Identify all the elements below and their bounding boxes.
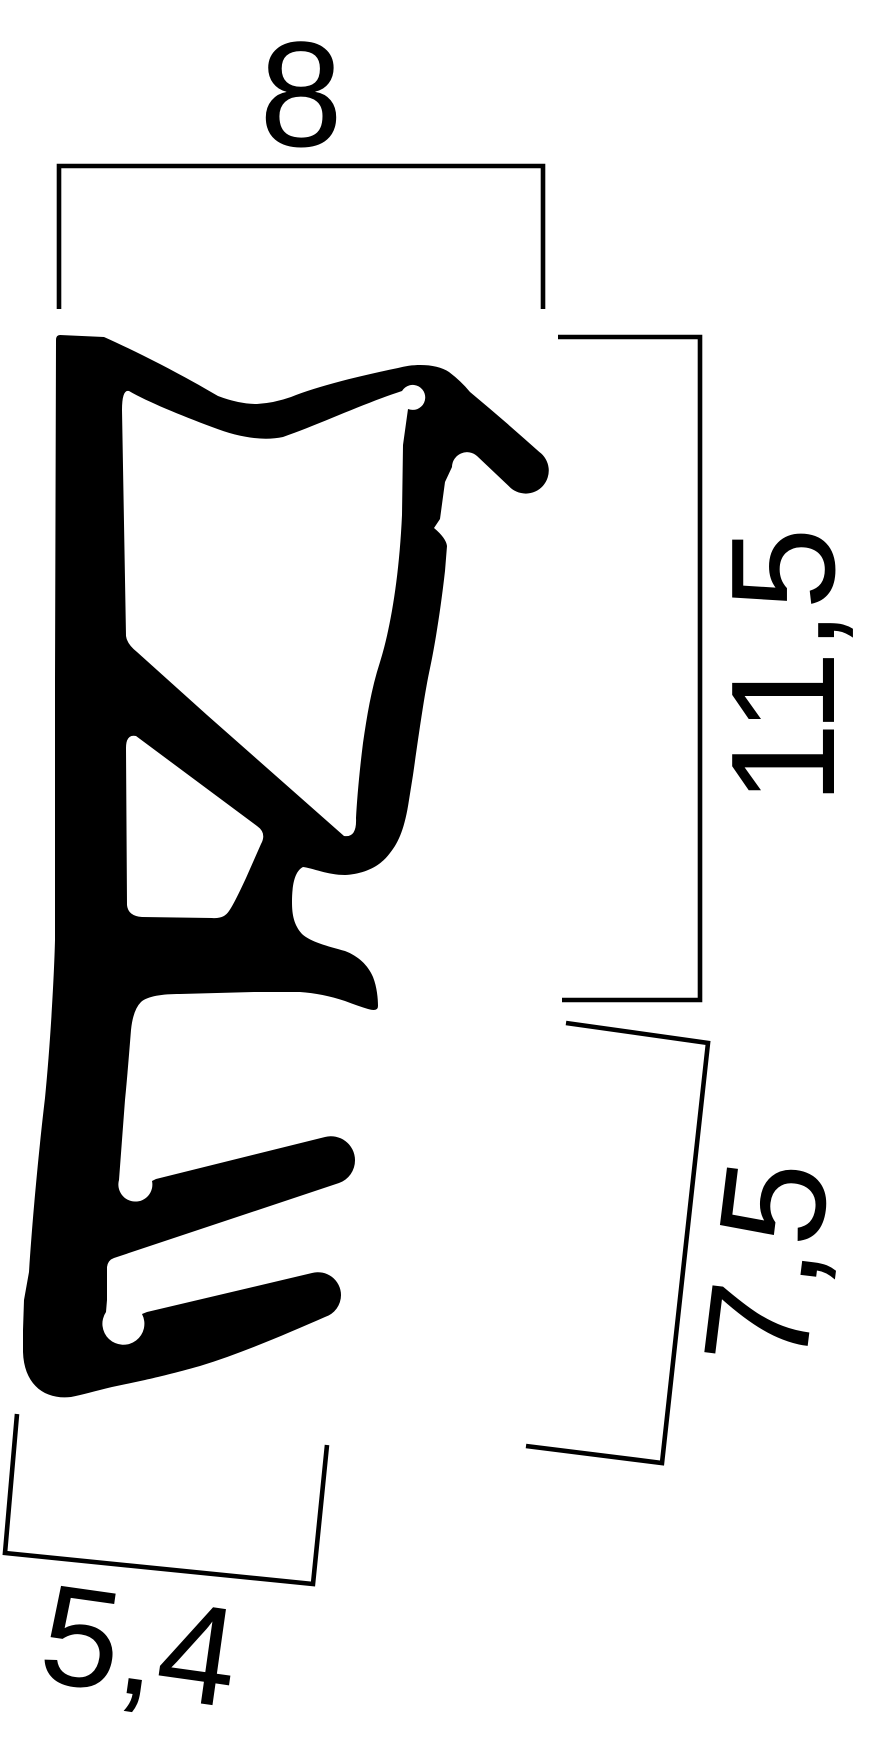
svg-text:5,4: 5,4 [32, 1554, 248, 1738]
svg-text:11,5: 11,5 [701, 527, 866, 804]
svg-text:7,5: 7,5 [672, 1152, 861, 1376]
svg-text:8: 8 [259, 10, 342, 178]
